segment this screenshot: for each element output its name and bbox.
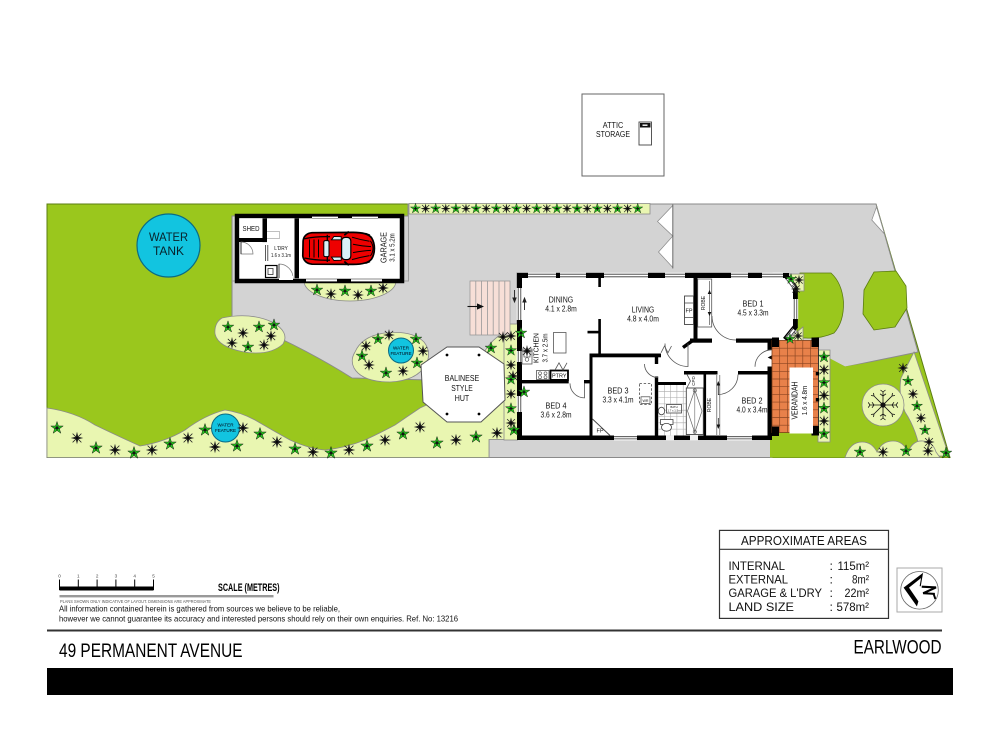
svg-text:ATTIC: ATTIC [603, 121, 624, 130]
svg-text:FP: FP [596, 429, 603, 435]
svg-text:FEATURE: FEATURE [215, 428, 236, 433]
svg-text:WR: WR [643, 399, 649, 403]
svg-text:BED 3: BED 3 [608, 387, 629, 396]
svg-text:INTERNAL: INTERNAL [729, 559, 786, 573]
svg-text:1.7 x 1.5m: 1.7 x 1.5m [667, 409, 681, 413]
svg-text:FEATURE: FEATURE [390, 351, 411, 356]
svg-text:1.6 x 3.1m: 1.6 x 3.1m [271, 253, 291, 259]
svg-text:8m²: 8m² [852, 573, 869, 587]
svg-text:All information contained here: All information contained herein is gath… [59, 604, 340, 614]
svg-text:3.3 x 4.1m: 3.3 x 4.1m [603, 396, 634, 405]
svg-text:APPROXIMATE AREAS: APPROXIMATE AREAS [741, 534, 867, 548]
svg-text:STYLE: STYLE [451, 384, 473, 393]
svg-text:BALINESE: BALINESE [445, 374, 480, 383]
svg-text:2: 2 [96, 574, 99, 579]
svg-text:BED 1: BED 1 [743, 300, 764, 309]
svg-text:SHED: SHED [243, 226, 260, 233]
svg-text:4.8 x 4.0m: 4.8 x 4.0m [627, 315, 659, 324]
svg-text:DINING: DINING [549, 296, 574, 305]
svg-text:3.1 x 5.2m: 3.1 x 5.2m [390, 233, 397, 262]
svg-text:LIVING: LIVING [632, 306, 655, 315]
svg-text:ROBE: ROBE [707, 397, 713, 412]
svg-text:WATER: WATER [149, 230, 188, 244]
svg-text:3: 3 [115, 574, 118, 579]
svg-text:49 PERMANENT AVENUE: 49 PERMANENT AVENUE [59, 640, 243, 662]
svg-text:EXTERNAL: EXTERNAL [729, 573, 789, 587]
svg-text:TANK: TANK [153, 244, 184, 258]
svg-text:KITCHEN: KITCHEN [532, 333, 541, 363]
svg-text:3.7 x 2.5m: 3.7 x 2.5m [541, 333, 550, 362]
svg-text:WATER: WATER [393, 346, 410, 351]
svg-text:CPD: CPD [691, 376, 696, 386]
svg-text:EARLWOOD: EARLWOOD [854, 638, 942, 659]
svg-text:4.1 x 2.8m: 4.1 x 2.8m [545, 305, 577, 314]
svg-text:5: 5 [152, 574, 155, 579]
svg-text:4.0 x 3.4m: 4.0 x 3.4m [737, 406, 768, 415]
svg-text:BED 4: BED 4 [546, 402, 568, 411]
svg-text:115m²: 115m² [838, 559, 870, 573]
svg-text:however we cannot guarantee it: however we cannot guarantee its accuracy… [59, 614, 458, 624]
svg-text:LAND SIZE: LAND SIZE [729, 600, 795, 614]
svg-text:GARAGE: GARAGE [380, 232, 389, 263]
svg-text:0: 0 [58, 574, 61, 579]
svg-text:GARAGE & L'DRY: GARAGE & L'DRY [729, 586, 823, 600]
svg-text:PTRY: PTRY [552, 374, 567, 380]
svg-text:VERANDAH: VERANDAH [791, 382, 800, 420]
svg-text:3.6 x 2.8m: 3.6 x 2.8m [541, 411, 572, 420]
svg-text:22m²: 22m² [845, 586, 870, 600]
svg-text::: : [830, 573, 833, 587]
svg-text:4: 4 [133, 574, 136, 579]
svg-text:FP: FP [685, 309, 692, 315]
svg-text:SCALE (METRES): SCALE (METRES) [218, 582, 280, 594]
svg-text:1.6 x 4.8m: 1.6 x 4.8m [800, 386, 809, 416]
svg-text::: : [830, 600, 833, 614]
svg-text:L'DRY: L'DRY [274, 246, 288, 252]
svg-text::: : [830, 559, 833, 573]
svg-text::: : [830, 586, 833, 600]
svg-text:578m²: 578m² [837, 600, 870, 614]
svg-text:4.5 x 3.3m: 4.5 x 3.3m [738, 309, 769, 318]
svg-text:HUT: HUT [455, 394, 470, 403]
svg-text:ROBE: ROBE [701, 295, 707, 310]
svg-text:1: 1 [77, 574, 80, 579]
svg-text:STORAGE: STORAGE [596, 130, 630, 139]
svg-text:WATER: WATER [217, 423, 234, 428]
svg-text:BED 2: BED 2 [742, 397, 763, 406]
